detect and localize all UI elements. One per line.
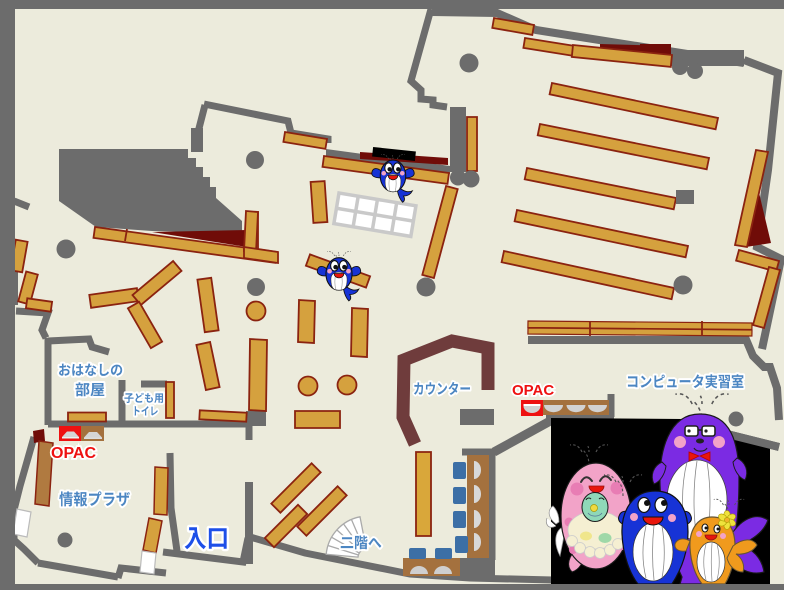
svg-text:OPAC: OPAC [51,445,96,462]
svg-text:OPAC: OPAC [512,382,554,399]
